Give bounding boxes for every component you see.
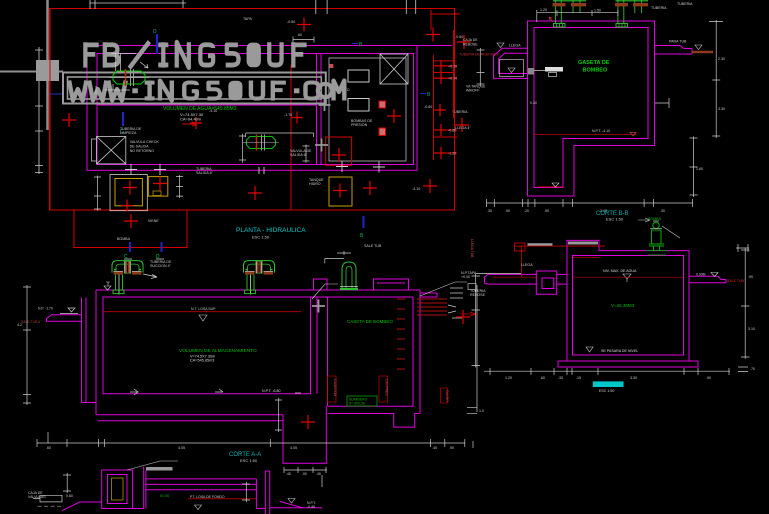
svg-text:S=.50: S=.50 bbox=[160, 494, 169, 498]
svg-text:2.30: 2.30 bbox=[718, 57, 725, 61]
svg-text:LLEGA TUB: LLEGA TUB bbox=[470, 239, 474, 258]
svg-text:.90: .90 bbox=[544, 209, 549, 213]
svg-text:N.P.T. -4.10: N.P.T. -4.10 bbox=[592, 129, 610, 133]
svg-text:1.20: 1.20 bbox=[505, 376, 512, 380]
svg-text:SALE TUB 6": SALE TUB 6" bbox=[21, 320, 42, 324]
svg-text:+0.00: +0.00 bbox=[461, 275, 470, 279]
svg-text:.90: .90 bbox=[449, 446, 454, 450]
svg-text:3.10: 3.10 bbox=[748, 327, 755, 331]
svg-text:-0.45: -0.45 bbox=[307, 505, 315, 509]
svg-text:-0.60: -0.60 bbox=[287, 20, 295, 24]
svg-text:ESC 1:50: ESC 1:50 bbox=[252, 235, 270, 240]
svg-text:CA=94.40m: CA=94.40m bbox=[180, 117, 202, 122]
svg-text:DE SALIDA: DE SALIDA bbox=[130, 145, 149, 149]
svg-text:BOMBEO: BOMBEO bbox=[583, 68, 608, 74]
svg-text:ESC 1:50: ESC 1:50 bbox=[240, 458, 258, 463]
svg-text:.45: .45 bbox=[316, 472, 321, 476]
svg-text:LLEGA: LLEGA bbox=[521, 263, 533, 267]
svg-text:CAJA DE: CAJA DE bbox=[463, 38, 478, 42]
svg-text:-0.60: -0.60 bbox=[455, 35, 463, 39]
svg-text:.45: .45 bbox=[432, 446, 437, 450]
svg-text:BOMBA: BOMBA bbox=[117, 237, 131, 241]
svg-text:.20: .20 bbox=[524, 209, 529, 213]
svg-text:0.60: 0.60 bbox=[66, 494, 73, 498]
svg-text:.90: .90 bbox=[748, 275, 753, 279]
svg-text:NIV. MAX. DE AGUA: NIV. MAX. DE AGUA bbox=[603, 269, 637, 273]
svg-text:-0.60: -0.60 bbox=[424, 105, 432, 109]
svg-text:-4.10: -4.10 bbox=[412, 187, 420, 191]
svg-text:TUBERIA: TUBERIA bbox=[452, 110, 468, 114]
svg-text:TUBERIA: TUBERIA bbox=[677, 2, 693, 6]
svg-text:IMHOFF: IMHOFF bbox=[466, 89, 479, 93]
svg-text:4.05: 4.05 bbox=[178, 446, 185, 450]
svg-text:ESC 1:50: ESC 1:50 bbox=[606, 217, 624, 222]
svg-text:VIENE: VIENE bbox=[148, 219, 159, 223]
svg-text:VALVULAS: VALVULAS bbox=[28, 495, 46, 499]
svg-text:REBOSE: REBOSE bbox=[463, 43, 478, 47]
svg-text:LLEGA: LLEGA bbox=[509, 44, 521, 48]
svg-text:N.T. LOSA SUP: N.T. LOSA SUP bbox=[191, 307, 216, 311]
svg-text:CAJ PRES: CAJ PRES bbox=[385, 379, 389, 396]
svg-text:+0.60: +0.60 bbox=[448, 65, 457, 69]
svg-text:N.P. -1.70: N.P. -1.70 bbox=[38, 307, 53, 311]
svg-text:0.30: 0.30 bbox=[530, 101, 537, 105]
svg-text:PARA TUB: PARA TUB bbox=[669, 40, 687, 44]
svg-text:PT. LOSA DE FONDO: PT. LOSA DE FONDO bbox=[190, 495, 225, 499]
svg-text:1.20: 1.20 bbox=[540, 8, 547, 12]
svg-text:LIMPIEZA: LIMPIEZA bbox=[120, 131, 137, 135]
svg-text:3.30: 3.30 bbox=[718, 107, 725, 111]
svg-text:1.60: 1.60 bbox=[696, 167, 703, 171]
svg-text:.15: .15 bbox=[576, 376, 581, 380]
svg-text:SALIDA 6": SALIDA 6" bbox=[290, 153, 308, 157]
svg-text:PLANTA - HIDRAULICA: PLANTA - HIDRAULICA bbox=[236, 227, 306, 234]
svg-text:.30: .30 bbox=[660, 209, 665, 213]
svg-text:PRESION: PRESION bbox=[351, 123, 368, 127]
svg-text:.50: .50 bbox=[302, 472, 307, 476]
svg-text:VALVULA CHECK: VALVULA CHECK bbox=[130, 140, 160, 144]
svg-text:-1.20: -1.20 bbox=[448, 152, 456, 156]
svg-text:+0.00: +0.00 bbox=[448, 77, 457, 81]
svg-text:GASETA DE: GASETA DE bbox=[578, 60, 610, 66]
svg-text:SE PASARA DE NIVEL: SE PASARA DE NIVEL bbox=[601, 349, 638, 353]
svg-text:CA=545.85m3: CA=545.85m3 bbox=[190, 359, 214, 363]
svg-text:D: D bbox=[153, 29, 157, 35]
svg-text:.60: .60 bbox=[46, 446, 51, 450]
svg-text:.30: .30 bbox=[558, 376, 563, 380]
svg-text:.45: .45 bbox=[286, 472, 291, 476]
svg-text:.60: .60 bbox=[540, 376, 545, 380]
svg-text:1.0: 1.0 bbox=[479, 409, 484, 413]
svg-text:BOMBA: BOMBA bbox=[648, 217, 662, 221]
svg-text:TUBERIA: TUBERIA bbox=[651, 6, 667, 10]
svg-text:CASETA DE BOMBEO: CASETA DE BOMBEO bbox=[347, 319, 393, 324]
svg-text:-4.10: -4.10 bbox=[209, 109, 217, 113]
svg-text:.90: .90 bbox=[706, 376, 711, 380]
svg-text:V=45.36M3: V=45.36M3 bbox=[611, 303, 635, 308]
svg-text:TUBERIA DE REBOSE 2": TUBERIA DE REBOSE 2" bbox=[459, 53, 500, 57]
svg-text:NO RETORNO: NO RETORNO bbox=[130, 149, 154, 153]
svg-text:S=.50X.50: S=.50X.50 bbox=[349, 402, 365, 406]
svg-text:N.P.T. -6.80: N.P.T. -6.80 bbox=[262, 389, 281, 393]
svg-text:SUCCION 4": SUCCION 4" bbox=[150, 264, 172, 268]
svg-text:1.50: 1.50 bbox=[594, 9, 601, 13]
svg-text:CAJ RO: CAJ RO bbox=[445, 390, 449, 402]
svg-text:VOLUMEN DE ALMACENAMIENTO: VOLUMEN DE ALMACENAMIENTO bbox=[179, 348, 257, 354]
svg-text:CAJA ROM: CAJA ROM bbox=[333, 379, 337, 397]
svg-text:4.05: 4.05 bbox=[290, 446, 297, 450]
svg-text:.30: .30 bbox=[487, 209, 492, 213]
svg-text:0.30M: 0.30M bbox=[696, 273, 706, 277]
svg-text:-1.70: -1.70 bbox=[284, 113, 292, 117]
svg-text:LLEGA 4": LLEGA 4" bbox=[455, 126, 471, 130]
svg-text:3.30: 3.30 bbox=[630, 376, 637, 380]
svg-text:.70: .70 bbox=[750, 367, 755, 371]
svg-text:HIDRO: HIDRO bbox=[309, 182, 321, 186]
svg-text:SALE TUB: SALE TUB bbox=[364, 244, 382, 248]
svg-text:TAPA: TAPA bbox=[243, 17, 252, 21]
svg-text:SALIDA 6": SALIDA 6" bbox=[196, 171, 214, 175]
svg-text:SALE TUB: SALE TUB bbox=[727, 279, 745, 283]
svg-text:.60: .60 bbox=[297, 33, 302, 37]
svg-text:REBOSE: REBOSE bbox=[470, 293, 486, 297]
svg-text:.90: .90 bbox=[505, 209, 510, 213]
svg-text:ESC 1:50: ESC 1:50 bbox=[599, 389, 614, 393]
